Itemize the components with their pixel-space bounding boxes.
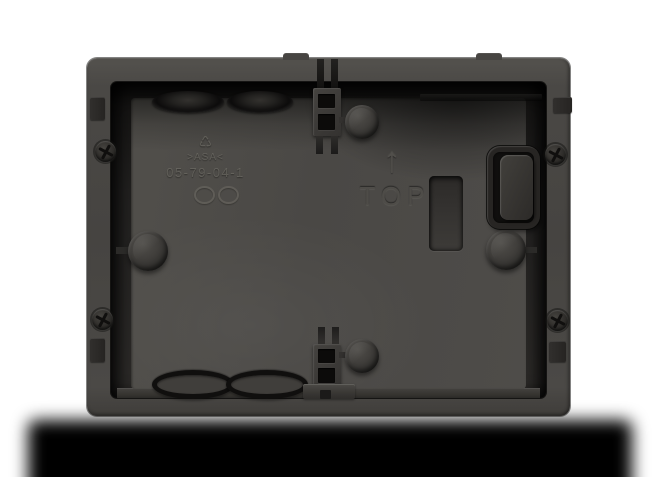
clip-hole	[318, 94, 335, 108]
recycling-icon: ♺	[158, 134, 253, 151]
round-post-bottom	[345, 339, 379, 373]
clip-leg	[331, 136, 338, 154]
clip-hole	[318, 368, 335, 383]
top-orientation-label: TOP	[352, 181, 438, 212]
round-post-right	[486, 230, 526, 270]
clip-leg	[316, 136, 323, 154]
mold-ejector-marks	[194, 186, 239, 204]
knockout-top-left	[152, 91, 224, 113]
screw-bottom-right	[547, 310, 568, 331]
clip-foot-notch	[320, 390, 331, 399]
screw-top-right	[545, 144, 566, 165]
mold-circle	[194, 186, 215, 204]
clip-hole	[318, 114, 335, 130]
retainer-clip-top	[313, 88, 341, 136]
knockout-top-right	[227, 91, 293, 113]
top-rim-tab	[283, 53, 309, 60]
cast-shadow	[28, 420, 632, 477]
top-wall-slot	[317, 59, 324, 89]
mold-circle	[218, 186, 239, 204]
knockout-bottom-left	[152, 370, 234, 399]
material-code-label: >ASA<	[158, 151, 253, 165]
flange-clip-tab	[549, 341, 566, 362]
round-post-left	[128, 231, 168, 271]
release-latch-pad	[500, 155, 533, 220]
clip-hole	[318, 349, 335, 363]
screw-top-left	[95, 141, 116, 162]
knockout-bottom-right	[226, 370, 308, 399]
top-rim-tab	[476, 53, 502, 60]
part-number-label: 05-79-04-1	[158, 165, 253, 181]
clip-prong	[318, 327, 325, 345]
flange-clip-tab	[90, 97, 105, 120]
screw-bottom-left	[92, 309, 113, 330]
up-arrow-icon: ↑	[378, 140, 406, 180]
clip-prong	[332, 327, 339, 345]
round-post-top	[345, 105, 379, 139]
retainer-clip-bottom	[313, 344, 341, 388]
top-wall-slot	[331, 59, 338, 89]
top-wall-step	[420, 94, 542, 101]
product-photo: ↑ TOP ♺ >ASA< 05-79-04-1	[0, 0, 660, 477]
flange-clip-tab	[553, 97, 572, 113]
flange-clip-tab	[90, 338, 105, 362]
molded-markings: ♺ >ASA< 05-79-04-1	[158, 134, 253, 181]
